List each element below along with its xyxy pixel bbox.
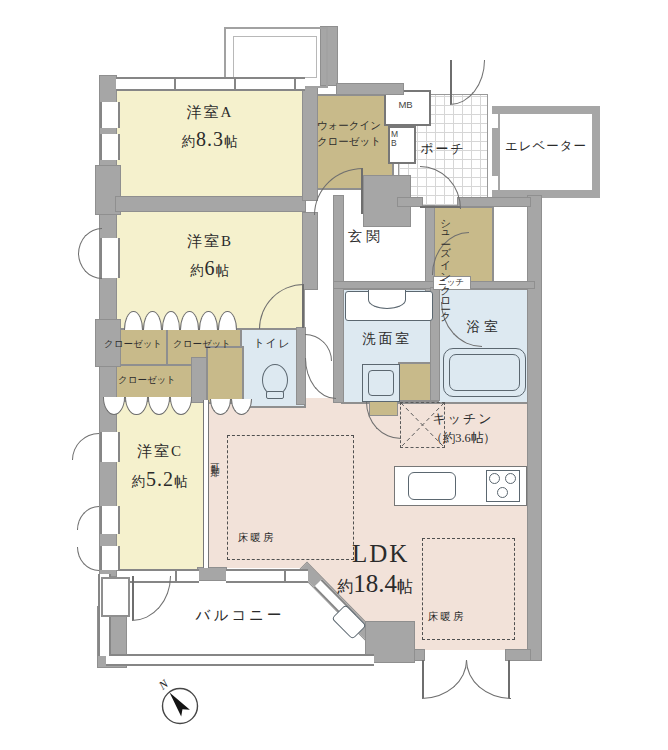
burner [505, 473, 516, 484]
bifold-arc [148, 397, 170, 415]
hall-storage-box [206, 346, 244, 404]
elevator-door-notch [488, 114, 498, 128]
toilet-door-arc [305, 334, 332, 361]
stove [486, 470, 520, 502]
meter-box-large-label: MB [384, 99, 427, 110]
ldk-label: LDK [352, 540, 409, 568]
burner [489, 473, 500, 484]
ldk-area: 約18.4帖 [305, 570, 445, 598]
wall-segment [458, 198, 530, 206]
bathroom-label: 浴室 [452, 318, 516, 336]
casement-window-arc [72, 433, 99, 460]
door-leaf [450, 60, 452, 104]
wall-segment [528, 196, 541, 660]
window-slit [100, 238, 120, 278]
closet-bifold-doors [124, 311, 237, 330]
closet-bifold-doors [103, 397, 192, 415]
window-band [226, 569, 308, 583]
washroom-label: 洗面室 [347, 330, 427, 348]
floor-heating-label: 床暖房 [238, 531, 276, 545]
window-slit [100, 546, 120, 570]
bifold-arc [210, 399, 231, 415]
door-leaf [420, 206, 460, 208]
casement-window-arc [77, 547, 99, 571]
bathtub-inner [449, 354, 520, 391]
toilet-label: トイレ [252, 336, 292, 351]
room-c-area: 約5.2帖 [105, 468, 215, 491]
bifold-arc [180, 311, 199, 330]
movable-door-label: 可動扉 [208, 456, 221, 504]
hall-storage-doors [210, 399, 252, 415]
ldk-terrace-door-right [466, 660, 511, 699]
floor-heating-label: 床暖房 [428, 610, 466, 624]
walk-in-closet-label: ウォークインクローゼット [313, 118, 385, 150]
door-leaf [422, 660, 424, 698]
toilet-base [266, 391, 284, 399]
kitchen-label: キッチン [408, 410, 518, 428]
wall-segment [198, 568, 226, 580]
casement-window-arc [78, 253, 102, 279]
room-c-label: 洋室C [110, 442, 210, 461]
room-a-label: 洋室A [155, 103, 265, 122]
wall-segment [303, 213, 317, 289]
vanity-sink [368, 290, 406, 309]
room-b-label: 洋室B [155, 232, 265, 251]
washroom-storage-box [398, 362, 435, 402]
window-band [116, 77, 305, 91]
kitchen-area: （約3.6帖） [400, 430, 526, 447]
porch-label: ポーチ [408, 140, 478, 158]
window-slit [100, 134, 120, 160]
floor-plan: MB MB [0, 0, 668, 750]
bifold-arc [170, 397, 192, 415]
entrance-label: 玄関 [348, 228, 384, 246]
bifold-arc [143, 311, 162, 330]
washer-pan [368, 370, 394, 396]
room-b-area: 約6帖 [150, 257, 270, 280]
casement-window-arc [78, 228, 102, 254]
bifold-arc [103, 397, 125, 415]
balcony-label: バルコニー [185, 606, 295, 625]
wall-segment [297, 328, 305, 404]
closet-label: クローゼット [168, 338, 236, 351]
wall-segment [337, 84, 403, 94]
elevator-label: エレベーター [500, 138, 592, 155]
bifold-arc [218, 311, 237, 330]
room-a-area: 約8.3帖 [150, 128, 270, 151]
wall-segment [506, 650, 530, 660]
bifold-arc [124, 311, 143, 330]
wall-segment [192, 358, 206, 402]
ldk-terrace-door-left [422, 660, 467, 699]
bifold-arc [162, 311, 181, 330]
meter-box-small-label: MB [391, 130, 401, 149]
door-leaf [361, 168, 363, 214]
wall-segment [398, 198, 422, 206]
door-leaf [508, 660, 510, 698]
bay-outline-inner [233, 36, 317, 78]
compass-north-label: N [155, 676, 171, 693]
toilet-door [305, 358, 336, 399]
north-compass: N [134, 660, 226, 744]
closet-label: クローゼット [104, 338, 162, 351]
elevator-door-notch [488, 176, 498, 190]
room-c-balcony-door [132, 576, 171, 621]
bifold-arc [231, 399, 252, 415]
bifold-arc [125, 397, 147, 415]
window-slit [100, 506, 120, 534]
balcony-storage [101, 577, 130, 617]
bifold-arc [199, 311, 218, 330]
door-leaf [302, 284, 304, 328]
casement-window-arc [77, 506, 99, 530]
niche-label: ニッチ [434, 277, 468, 289]
closet-label: クローゼット [106, 374, 188, 387]
wall-segment [116, 197, 305, 211]
door-leaf [132, 576, 134, 620]
kitchen-sink [408, 472, 456, 500]
burner [497, 487, 508, 498]
window-slit [100, 102, 120, 128]
